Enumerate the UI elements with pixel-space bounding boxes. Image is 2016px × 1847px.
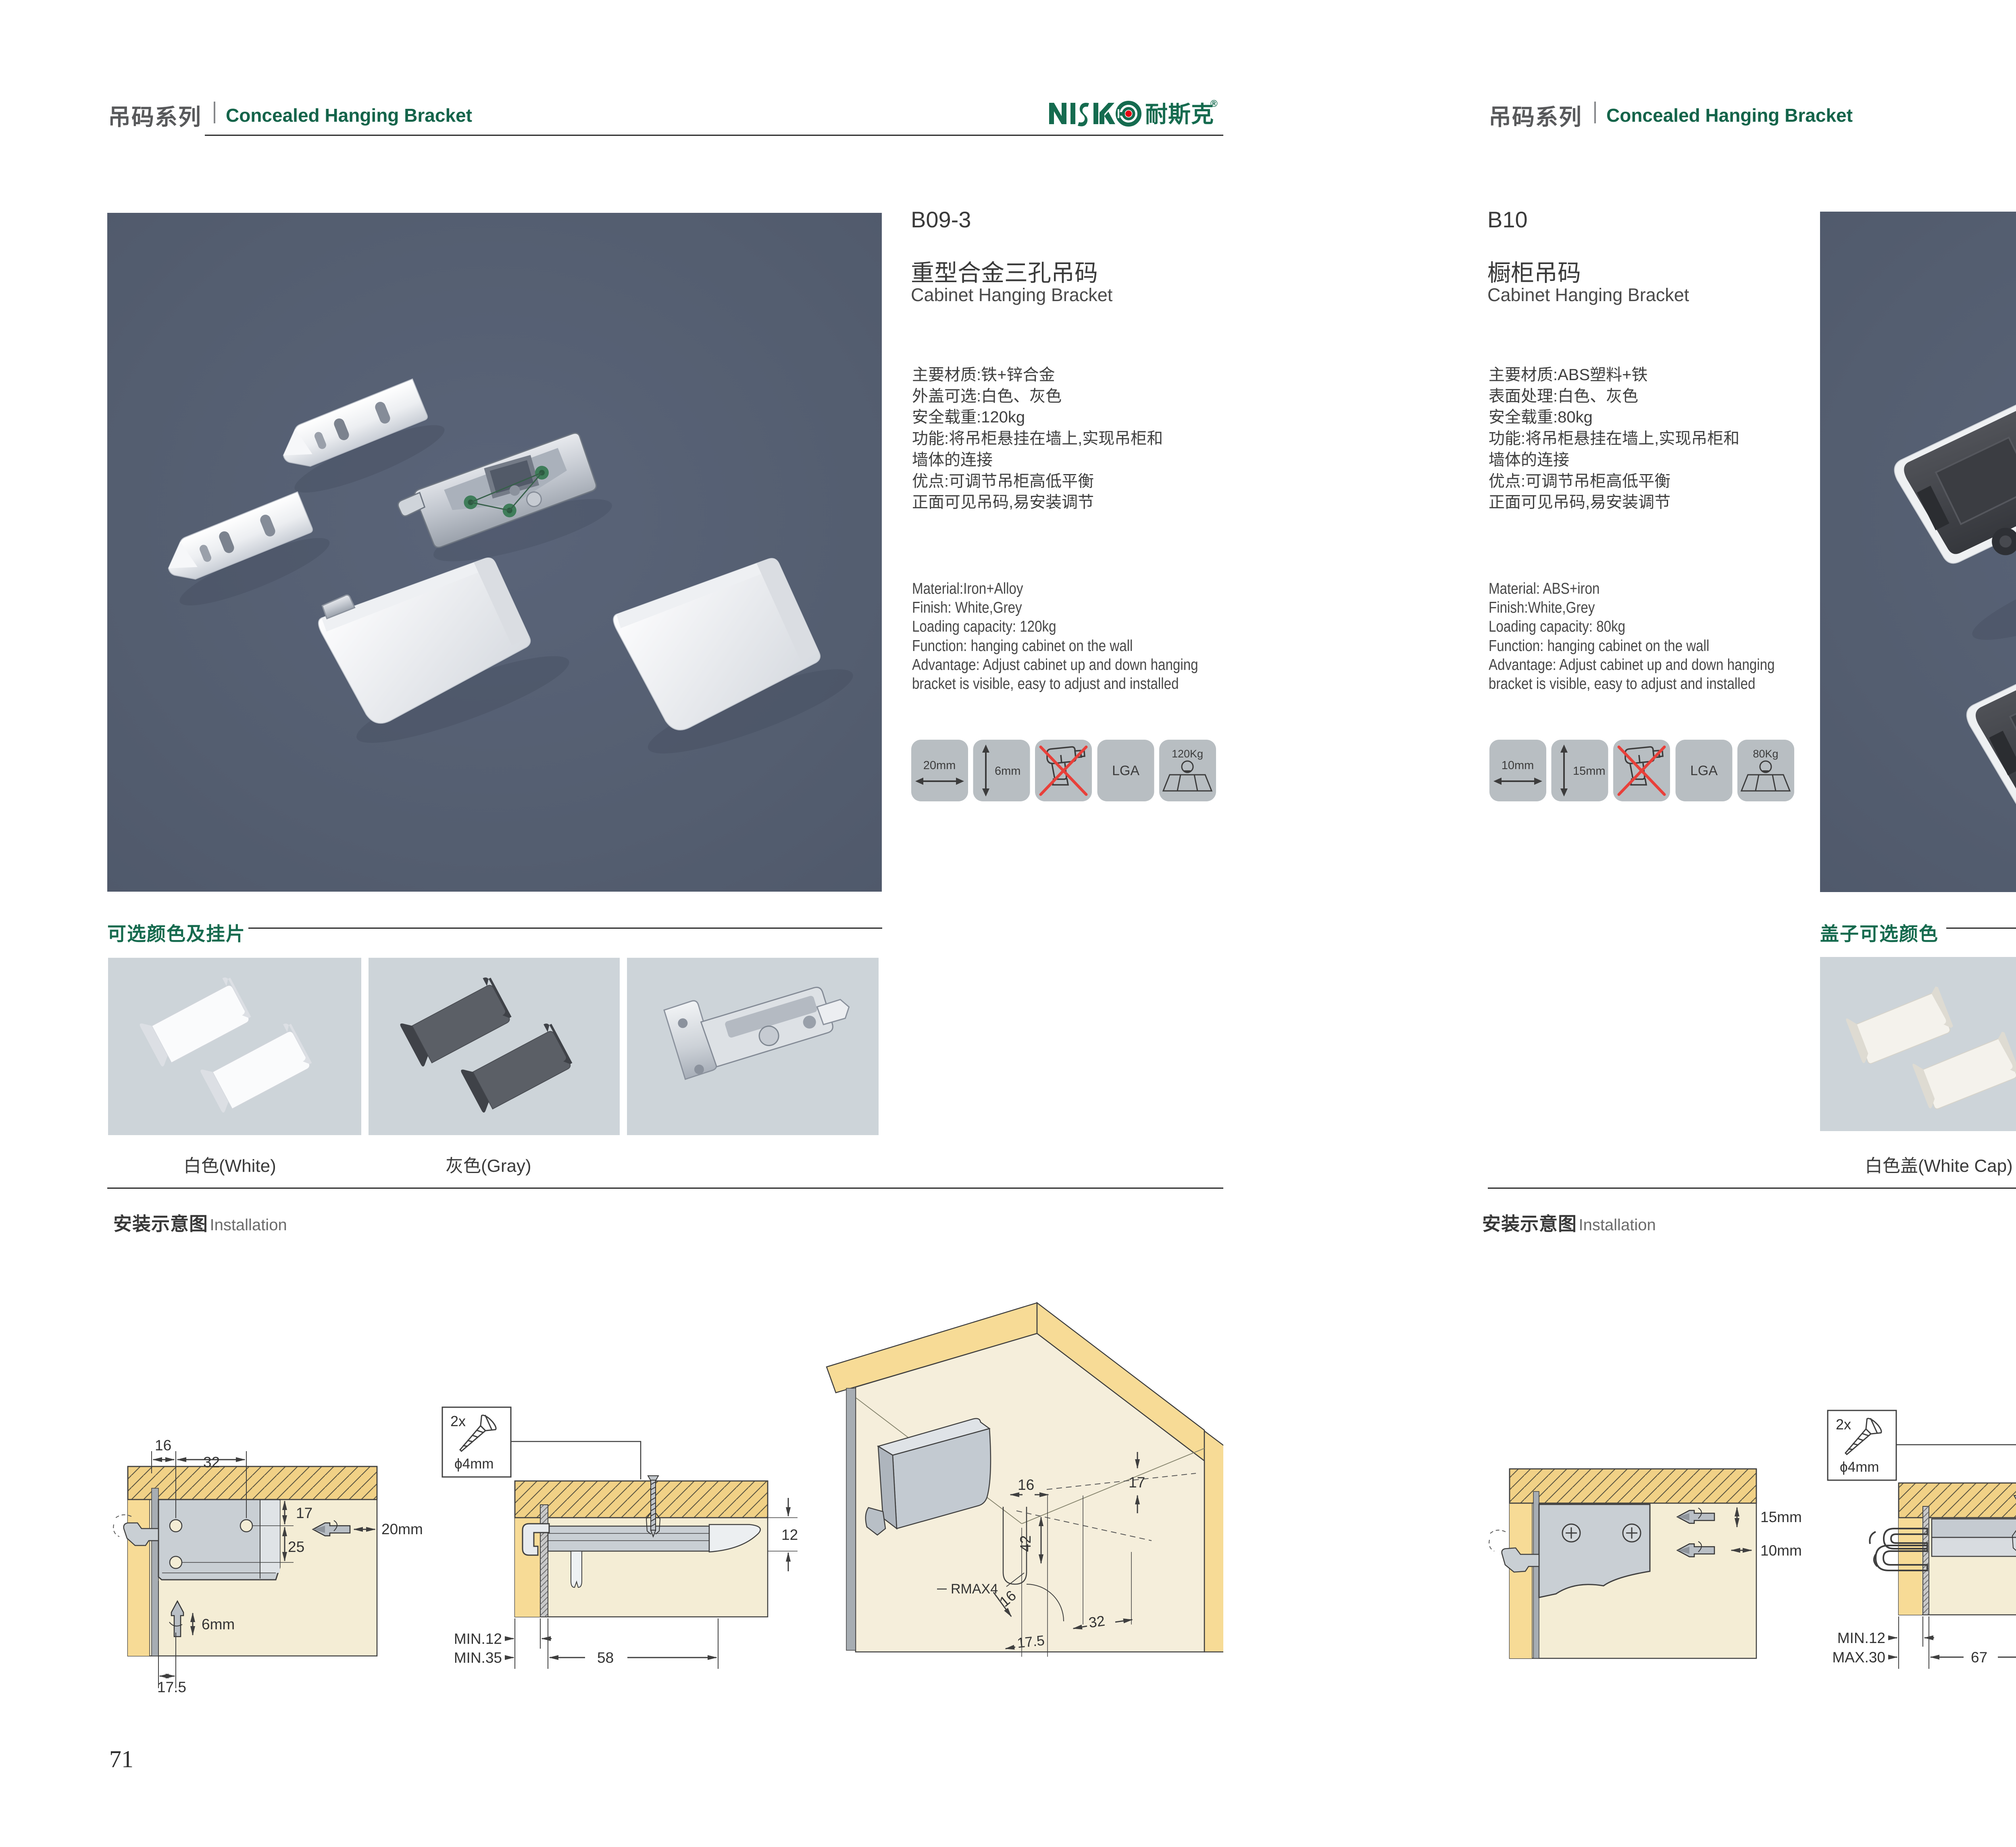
svg-text:2x: 2x: [450, 1413, 466, 1429]
svg-text:32: 32: [203, 1454, 220, 1471]
svg-text:17.5: 17.5: [157, 1679, 186, 1695]
svg-text:17: 17: [1129, 1474, 1145, 1491]
svg-text:2x: 2x: [1836, 1416, 1851, 1433]
svg-text:20mm: 20mm: [923, 759, 956, 772]
svg-text:MAX.30: MAX.30: [1832, 1649, 1885, 1666]
svg-text:ϕ4mm: ϕ4mm: [454, 1456, 494, 1472]
svg-text:MIN.35: MIN.35: [454, 1649, 502, 1666]
svg-text:LGA: LGA: [1690, 763, 1718, 778]
svg-text:6mm: 6mm: [202, 1616, 235, 1633]
svg-text:42: 42: [1017, 1535, 1034, 1552]
svg-text:15mm: 15mm: [1760, 1509, 1802, 1525]
svg-text:LGA: LGA: [1112, 763, 1139, 778]
svg-text:25: 25: [288, 1539, 304, 1555]
svg-text:15mm: 15mm: [1573, 765, 1606, 778]
svg-text:ϕ4mm: ϕ4mm: [1840, 1459, 1879, 1475]
svg-text:17: 17: [296, 1505, 312, 1521]
svg-text:12: 12: [781, 1527, 798, 1543]
svg-text:6mm: 6mm: [995, 765, 1020, 778]
svg-text:耐斯克: 耐斯克: [1145, 102, 1214, 127]
svg-text:10mm: 10mm: [1502, 759, 1534, 772]
svg-text:120Kg: 120Kg: [1172, 748, 1203, 760]
svg-text:®: ®: [1210, 98, 1218, 109]
svg-text:17.5: 17.5: [1016, 1633, 1045, 1651]
svg-text:58: 58: [597, 1649, 614, 1666]
svg-text:16: 16: [1018, 1477, 1034, 1493]
svg-text:MIN.12: MIN.12: [454, 1631, 502, 1647]
svg-text:32: 32: [1087, 1612, 1106, 1631]
svg-text:MIN.12: MIN.12: [1837, 1630, 1885, 1646]
svg-text:67: 67: [1971, 1649, 1987, 1666]
svg-text:16: 16: [155, 1437, 171, 1454]
svg-text:RMAX4: RMAX4: [951, 1581, 998, 1597]
svg-text:20mm: 20mm: [381, 1521, 423, 1537]
svg-text:80Kg: 80Kg: [1753, 748, 1778, 760]
svg-text:10mm: 10mm: [1760, 1542, 1802, 1559]
